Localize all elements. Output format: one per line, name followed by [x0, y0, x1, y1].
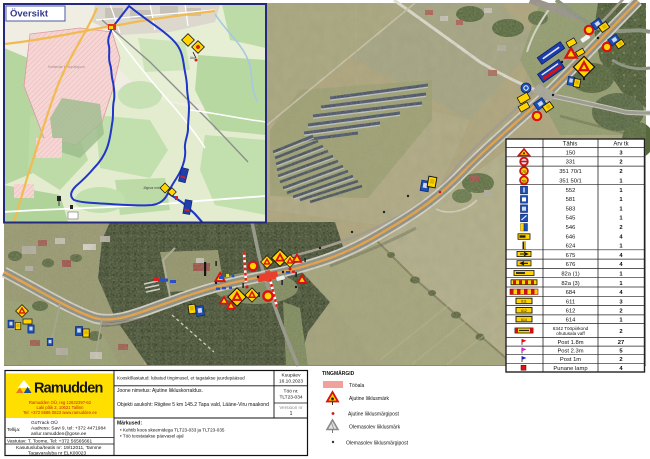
svg-text:• Töö teostatakse päevasel aj: • Töö teostatakse päevasel ajal	[120, 434, 184, 439]
svg-text:1: 1	[290, 411, 293, 417]
svg-text:82a (1): 82a (1)	[561, 272, 579, 278]
svg-text:612: 612	[566, 309, 576, 315]
svg-text:Kuupäev: Kuupäev	[282, 373, 302, 379]
svg-text:Post 1.8m: Post 1.8m	[557, 340, 583, 346]
svg-text:Aadress: Savi 9, tel: +372 447: Aadress: Savi 9, tel: +372 4471984	[31, 426, 106, 432]
svg-text:Tellija:: Tellija:	[7, 427, 20, 433]
svg-text:70: 70	[522, 170, 526, 174]
svg-text:Tel: +372 5586 0823 www.ramud: Tel: +372 5586 0823 www.ramudden.ee	[23, 410, 98, 415]
svg-text:Olemasolev liiklusmärgipost: Olemasolev liiklusmärgipost	[346, 441, 409, 447]
svg-text:TLT23-034: TLT23-034	[279, 395, 302, 401]
svg-text:Tähis: Tähis	[563, 142, 578, 148]
svg-text:ohutusala vaff: ohutusala vaff	[556, 331, 585, 336]
svg-text:16.10.2023: 16.10.2023	[279, 379, 303, 385]
svg-text:2: 2	[619, 309, 622, 315]
svg-text:50: 50	[522, 179, 526, 183]
svg-text:614: 614	[521, 318, 527, 322]
svg-text:2: 2	[619, 329, 622, 335]
svg-text:614: 614	[566, 317, 576, 323]
svg-text:Olemasolev liiklusmärk: Olemasolev liiklusmärk	[349, 425, 401, 431]
svg-text:Märkused:: Märkused:	[117, 421, 142, 427]
svg-text:150: 150	[566, 150, 576, 156]
svg-text:Översikt: Översikt	[10, 9, 49, 20]
svg-text:545: 545	[566, 216, 576, 222]
svg-text:Ajutine liiklusmärgipost: Ajutine liiklusmärgipost	[348, 412, 399, 418]
svg-text:Arv tk: Arv tk	[613, 142, 629, 148]
svg-text:546: 546	[566, 225, 576, 231]
svg-text:• Kehtib koos skeemidega TLT2: • Kehtib koos skeemidega TLT23-033 ja TL…	[120, 428, 225, 433]
svg-text:2: 2	[619, 357, 622, 363]
svg-text:Objekti asukoht: Riigitee 5 km: Objekti asukoht: Riigitee 5 km 145.2 Tap…	[117, 402, 269, 408]
svg-text:Jõgeva mnt: Jõgeva mnt	[143, 186, 160, 190]
svg-text:82a (3): 82a (3)	[561, 281, 579, 287]
svg-text:Kasutusluba/teatis nr: 19/1201: Kasutusluba/teatis nr: 19/12011, Tamme	[16, 445, 102, 451]
svg-text:Tagavaraluba nr ELK00023: Tagavaraluba nr ELK00023	[28, 450, 86, 456]
svg-text:anlur.ramudden@gose.ee: anlur.ramudden@gose.ee	[31, 431, 87, 437]
svg-text:624: 624	[566, 244, 576, 250]
svg-text:581: 581	[566, 197, 576, 203]
svg-text:Ata: Ata	[190, 56, 195, 60]
svg-text:Kooskõlastatud: lubatud tingim: Kooskõlastatud: lubatud tingimusel, et t…	[117, 376, 245, 381]
svg-text:583: 583	[566, 206, 576, 212]
svg-text:GoTrack OÜ: GoTrack OÜ	[31, 419, 58, 426]
svg-text:351 70/1: 351 70/1	[559, 169, 582, 175]
svg-text:611: 611	[566, 299, 575, 305]
svg-text:Post 1m: Post 1m	[560, 357, 581, 363]
svg-text:2: 2	[619, 169, 622, 175]
svg-text:27: 27	[618, 340, 624, 346]
svg-text:TINGMÄRGID: TINGMÄRGID	[322, 370, 355, 377]
svg-text:Tööala: Tööala	[349, 383, 365, 389]
svg-text:684: 684	[566, 290, 576, 296]
svg-text:646: 646	[566, 234, 576, 240]
svg-text:675: 675	[566, 253, 576, 259]
svg-text:Joone nimetus: Ajutine liiklus: Joone nimetus: Ajutine liikluskorraldus.	[117, 388, 203, 394]
svg-text:Versioon nr: Versioon nr	[279, 405, 303, 410]
svg-text:2: 2	[619, 225, 622, 231]
svg-text:2: 2	[619, 160, 622, 166]
svg-text:676: 676	[566, 262, 576, 268]
svg-text:552: 552	[566, 188, 576, 194]
svg-text:Töö nr.: Töö nr.	[284, 389, 299, 395]
svg-text:351 50/1: 351 50/1	[559, 179, 582, 185]
svg-text:612: 612	[521, 309, 527, 313]
svg-text:Post 2.3m: Post 2.3m	[557, 349, 583, 355]
svg-text:331: 331	[566, 160, 576, 166]
svg-text:Punane lamp: Punane lamp	[553, 366, 587, 372]
svg-text:Ajutine liiklusmärk: Ajutine liiklusmärk	[349, 396, 390, 402]
svg-text:611: 611	[521, 300, 527, 304]
svg-text:Ramudden: Ramudden	[34, 381, 103, 397]
